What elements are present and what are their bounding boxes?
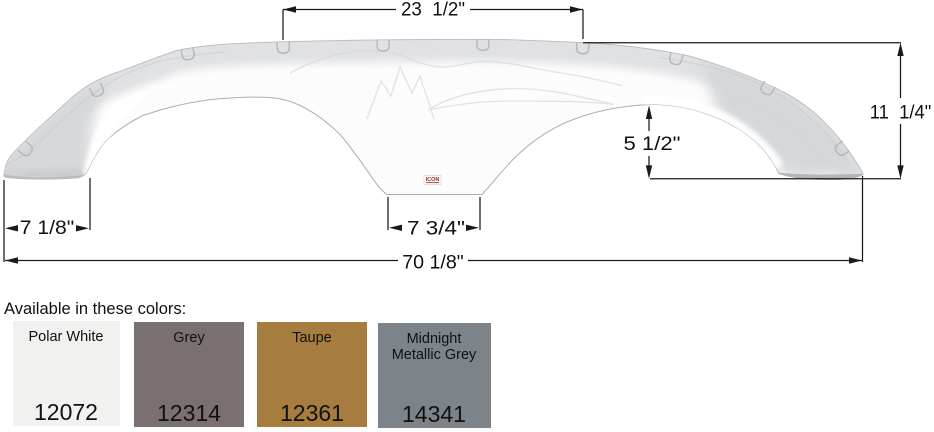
svg-text:Polar White: Polar White <box>29 329 104 345</box>
svg-text:12361: 12361 <box>280 400 344 426</box>
svg-text:Available in these colors:: Available in these colors: <box>4 300 186 318</box>
svg-text:Metallic Grey: Metallic Grey <box>392 347 477 363</box>
svg-text:Taupe: Taupe <box>292 330 332 346</box>
svg-text:11 1/4": 11 1/4" <box>870 102 932 124</box>
svg-text:7 3/4": 7 3/4" <box>407 218 465 240</box>
svg-text:7 1/8": 7 1/8" <box>20 217 75 239</box>
svg-text:14341: 14341 <box>402 401 466 427</box>
svg-text:70 1/8": 70 1/8" <box>402 252 464 274</box>
svg-text:5 1/2": 5 1/2" <box>624 133 681 155</box>
svg-text:Grey: Grey <box>173 330 205 346</box>
svg-text:12314: 12314 <box>157 400 221 426</box>
svg-text:12072: 12072 <box>34 399 98 425</box>
svg-text:Midnight: Midnight <box>407 331 462 347</box>
svg-text:23 1/2": 23 1/2" <box>401 0 465 21</box>
